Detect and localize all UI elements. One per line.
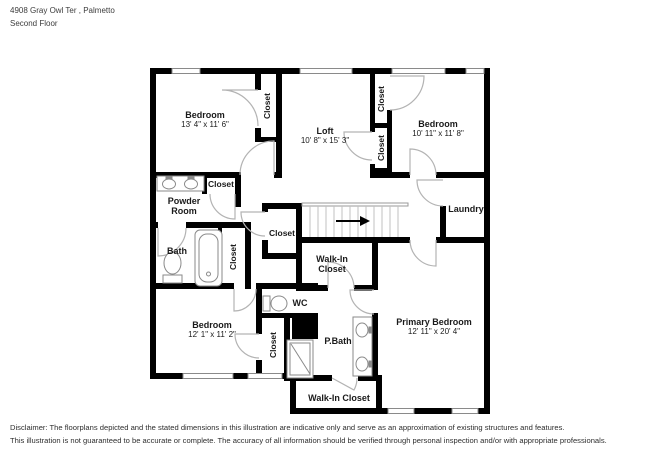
closet-label-center: Closet	[269, 228, 295, 238]
bath-toilet	[163, 252, 182, 283]
room-label-bedroom-bottom-left: Bedroom 12' 1" x 11' 2"	[188, 320, 236, 340]
room-label-laundry: Laundry	[448, 204, 484, 214]
room-label-bath: Bath	[167, 246, 187, 256]
room-name-line1: Powder	[168, 196, 201, 206]
room-label-walk-in-closet-center: Walk-In Closet	[316, 254, 348, 274]
room-dims: 10' 11" x 11' 8"	[412, 129, 464, 139]
room-label-powder-room: Powder Room	[168, 196, 201, 216]
stairs	[302, 203, 408, 237]
room-name: Bedroom	[188, 320, 236, 330]
room-label-primary-bedroom: Primary Bedroom 12' 11" x 20' 4"	[396, 317, 472, 337]
room-name-line2: Closet	[316, 264, 348, 274]
pbath-sinks	[353, 317, 372, 376]
room-dims: 13' 4" x 11' 6"	[181, 120, 229, 130]
room-dims: 12' 11" x 20' 4"	[396, 327, 472, 337]
closet-label-top-left: Closet	[262, 93, 272, 119]
room-name-line1: Walk-In	[316, 254, 348, 264]
closet-label-bath: Closet	[228, 244, 238, 270]
room-label-bedroom-top-left: Bedroom 13' 4" x 11' 6"	[181, 110, 229, 130]
floorplan-drawing	[0, 0, 650, 460]
room-name: Bedroom	[181, 110, 229, 120]
closet-label-top-right-2: Closet	[376, 135, 386, 161]
closet-label-top-right-1: Closet	[376, 86, 386, 112]
room-name-line2: Room	[168, 206, 201, 216]
disclaimer: Disclaimer: The floorplans depicted and …	[10, 421, 646, 447]
room-label-pbath: P.Bath	[324, 336, 351, 346]
floorplan-page: 4908 Gray Owl Ter , Palmetto Second Floo…	[0, 0, 650, 460]
powder-sinks	[157, 176, 204, 191]
room-name: Primary Bedroom	[396, 317, 472, 327]
room-name: Bedroom	[412, 119, 464, 129]
wc-toilet	[263, 296, 287, 311]
room-label-wc: WC	[293, 298, 308, 308]
closet-label-powder: Closet	[208, 179, 234, 189]
room-label-walk-in-closet-bottom: Walk-In Closet	[308, 393, 370, 403]
room-label-bedroom-top-right: Bedroom 10' 11" x 11' 8"	[412, 119, 464, 139]
room-dims: 12' 1" x 11' 2"	[188, 330, 236, 340]
room-dims: 10' 8" x 15' 3"	[301, 136, 349, 146]
closet-label-bottom-left: Closet	[268, 332, 278, 358]
stairs-direction-arrow	[336, 216, 370, 226]
shower	[287, 340, 313, 378]
disclaimer-line-1: Disclaimer: The floorplans depicted and …	[10, 421, 646, 434]
disclaimer-line-2: This illustration is not guaranteed to b…	[10, 434, 646, 447]
room-name: Loft	[301, 126, 349, 136]
room-label-loft: Loft 10' 8" x 15' 3"	[301, 126, 349, 146]
bathtub	[195, 230, 222, 286]
